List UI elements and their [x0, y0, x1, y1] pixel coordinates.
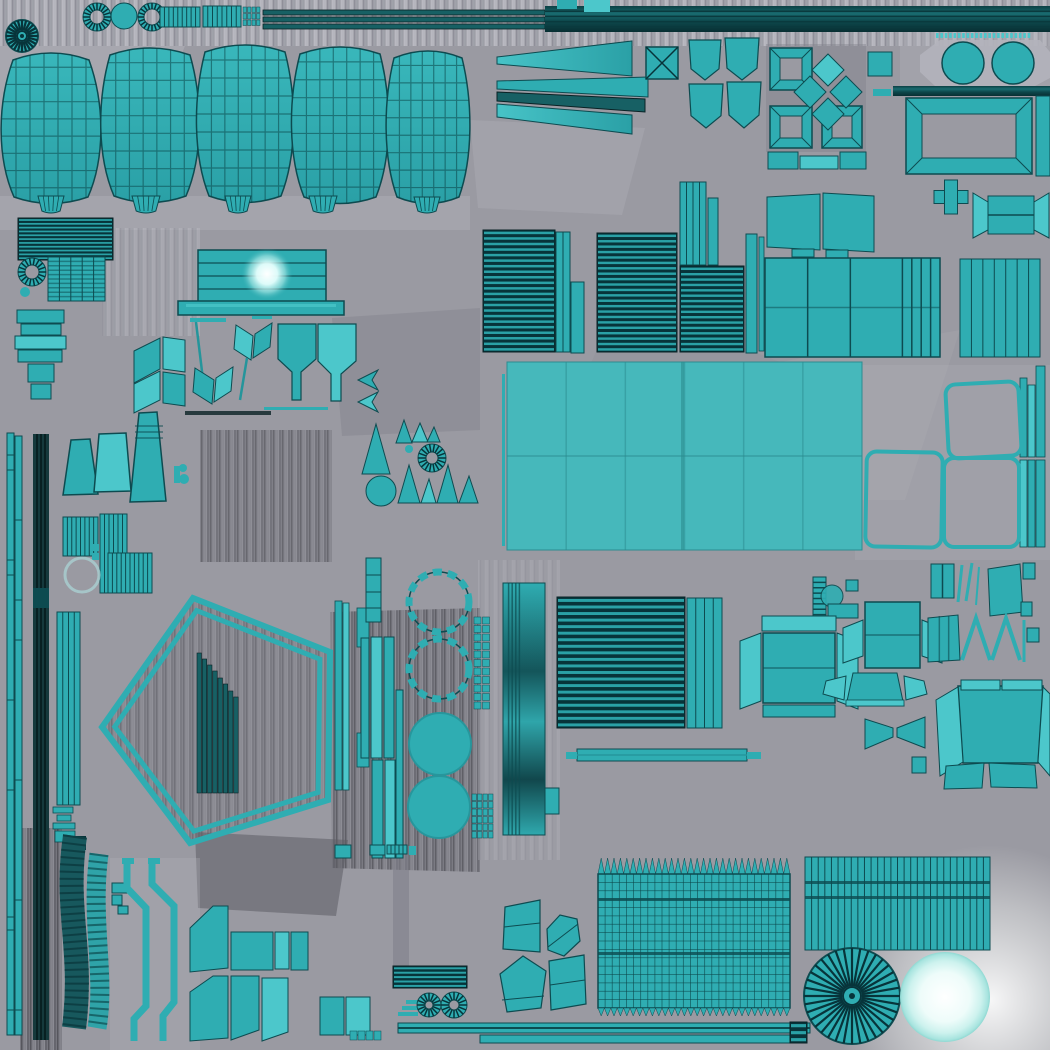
- cell-column: [483, 694, 490, 701]
- cell-grid: [489, 817, 494, 824]
- square-frame: [906, 98, 1032, 174]
- louver-panel: [484, 248, 554, 250]
- unfold-flap: [936, 687, 963, 776]
- striped-strip: [203, 6, 241, 27]
- slat-seam: [805, 896, 990, 899]
- dark-rail-cap: [33, 588, 49, 608]
- louver-panel: [558, 710, 684, 713]
- slat: [746, 234, 757, 353]
- rod-cap: [566, 752, 577, 759]
- dot: [179, 464, 187, 472]
- louver-panel: [681, 321, 743, 323]
- louver-panel: [558, 678, 684, 681]
- pod-panel: [0, 50, 105, 205]
- louver-panel: [598, 332, 676, 334]
- louver-panel: [598, 289, 676, 291]
- stair-strips: [213, 671, 217, 793]
- louver-panel: [791, 1038, 806, 1041]
- radial-fan-disc: [849, 993, 855, 999]
- long-strip: [7, 433, 14, 1035]
- edge-strip: [1036, 96, 1050, 176]
- dotted-strip: [984, 33, 987, 38]
- comb-block: [243, 14, 247, 20]
- radial-fan-disc: [804, 948, 900, 1044]
- pod-tip-fan: [309, 196, 337, 213]
- cell-column: [474, 702, 481, 709]
- louver-panel: [484, 337, 554, 339]
- unfold-flap: [944, 763, 984, 789]
- panel: [291, 932, 308, 970]
- louver-panel: [558, 658, 684, 661]
- dotted-strip: [1010, 33, 1013, 38]
- chip: [335, 845, 351, 858]
- comb-block: [257, 7, 261, 13]
- louver-panel: [19, 223, 112, 225]
- edge-slat: [1036, 460, 1045, 547]
- pod-panel: [97, 45, 203, 204]
- skirt-hem: [846, 700, 904, 706]
- louver-panel: [598, 337, 676, 339]
- x-square: [646, 47, 678, 79]
- louver-panel: [681, 311, 743, 313]
- cell-column: [483, 634, 490, 641]
- slat-panel: [57, 612, 80, 805]
- curved-ribbed-band: [96, 854, 100, 1028]
- dot: [405, 445, 413, 453]
- cell-column: [474, 660, 481, 667]
- slat-seam: [805, 881, 990, 884]
- uv-texture-atlas-page: [0, 0, 1050, 1050]
- louver-panel: [598, 327, 676, 329]
- chip: [1023, 563, 1035, 579]
- cell-grid: [478, 824, 483, 831]
- comb-block: [257, 14, 261, 20]
- cell-column: [483, 651, 490, 658]
- louver-panel: [558, 684, 684, 687]
- bg-patch: [195, 832, 348, 916]
- dotted-strip: [971, 33, 974, 38]
- louver-panel: [598, 310, 676, 312]
- louver-panel: [681, 337, 743, 339]
- louver-panel: [681, 327, 743, 329]
- long-strip: [7, 433, 14, 1035]
- chip: [1027, 628, 1039, 642]
- glow-sphere: [900, 952, 990, 1042]
- long-strip: [15, 436, 22, 1035]
- cell-column: [483, 660, 490, 667]
- tall-bar: [372, 760, 383, 858]
- louver-panel: [483, 230, 555, 352]
- cell-grid: [489, 794, 494, 801]
- cell-column: [474, 651, 481, 658]
- louver-panel: [791, 1024, 806, 1027]
- stair-bit: [57, 815, 71, 821]
- pedestal-step: [31, 384, 51, 399]
- louver-panel: [598, 343, 676, 345]
- comb-block: [248, 20, 252, 26]
- chip: [92, 544, 99, 551]
- louver-panel: [681, 294, 743, 296]
- louver-panel: [484, 270, 554, 272]
- louver-panel: [484, 315, 554, 317]
- bg-patch: [200, 430, 332, 562]
- louver-panel: [484, 265, 554, 267]
- solid-disc: [408, 776, 470, 838]
- tall-bar: [385, 760, 395, 858]
- cell-column: [483, 668, 490, 675]
- louver-panel: [681, 273, 743, 275]
- louver-panel: [598, 321, 676, 323]
- louver-panel: [19, 219, 112, 221]
- cell-grid: [478, 832, 483, 839]
- cell-column: [474, 668, 481, 675]
- louver-panel: [598, 305, 676, 307]
- small-bar: [873, 89, 891, 96]
- louver-panel: [598, 240, 676, 242]
- grid-seam: [598, 952, 790, 955]
- dotted-strip: [975, 33, 978, 38]
- pod-panel: [193, 42, 297, 204]
- cell-grid: [478, 802, 483, 809]
- gear-disc: [20, 34, 24, 38]
- tetris-bit: [112, 895, 122, 905]
- small-disc: [20, 287, 30, 297]
- louver-panel: [558, 612, 684, 615]
- dot: [179, 474, 189, 484]
- stair-bit: [53, 823, 75, 829]
- stair-strips: [229, 691, 233, 793]
- pod-tip-fan: [38, 196, 64, 213]
- louver-panel: [484, 232, 554, 234]
- louver-panel: [18, 218, 113, 260]
- unfold-center: [958, 686, 1043, 763]
- louver-panel: [598, 235, 676, 237]
- chip: [92, 553, 99, 560]
- cell-grid: [483, 802, 488, 809]
- unfold-flap: [740, 633, 761, 709]
- unfold-flap: [1002, 680, 1042, 690]
- tab: [792, 249, 814, 257]
- cell-row: [350, 1031, 357, 1040]
- slat-panel: [387, 845, 407, 854]
- louver-panel: [19, 227, 112, 229]
- louver-panel: [394, 967, 466, 969]
- comb-block: [248, 7, 252, 13]
- louver-panel: [558, 717, 684, 720]
- comb-block: [248, 14, 252, 20]
- louver-panel: [598, 267, 676, 269]
- top-band: [545, 6, 1050, 32]
- comb-block: [252, 7, 256, 13]
- stair-bit: [53, 807, 73, 813]
- louver-panel: [484, 293, 554, 295]
- thin-strip: [502, 374, 505, 546]
- louver-panel: [484, 237, 554, 239]
- dotted-strip: [1006, 33, 1009, 38]
- segmented-strip: [366, 558, 381, 622]
- panel: [320, 997, 344, 1035]
- louver-panel: [681, 300, 743, 302]
- louver-panel: [19, 242, 112, 244]
- arrow-flag: [190, 318, 226, 322]
- louver-panel: [680, 266, 744, 352]
- louver-panel: [681, 316, 743, 318]
- dotted-strip: [993, 33, 996, 38]
- tetris-bit: [118, 906, 128, 914]
- louver-panel: [681, 348, 743, 350]
- cell-row: [358, 1031, 365, 1040]
- solid-disc: [111, 3, 137, 29]
- pinwheel-tab: [768, 152, 798, 169]
- comb-block: [252, 20, 256, 26]
- cross-piece: [945, 180, 958, 214]
- louver-panel: [484, 309, 554, 311]
- pod-panel: [383, 48, 473, 205]
- striped-strip: [160, 7, 200, 27]
- pod-tip-fan: [225, 196, 251, 213]
- sail-quad: [163, 372, 185, 406]
- wedge-panel: [928, 615, 960, 662]
- long-bar: [480, 1035, 790, 1043]
- long-bar-line: [398, 1027, 810, 1029]
- dotted-strip: [967, 33, 970, 38]
- cell-column: [474, 643, 481, 650]
- small-square: [868, 52, 892, 76]
- pod-tip-fan: [414, 197, 440, 213]
- louver-panel: [598, 245, 676, 247]
- louver-panel: [598, 272, 676, 274]
- pod-tip-fan: [309, 196, 337, 213]
- cell-grid: [489, 809, 494, 816]
- louver-panel: [598, 294, 676, 296]
- louver-panel: [598, 251, 676, 253]
- cell-column: [474, 694, 481, 701]
- pod-tip-fan: [132, 196, 160, 213]
- tall-bar: [335, 601, 342, 790]
- louver-panel: [790, 1022, 807, 1043]
- louver-panel: [19, 238, 112, 240]
- cell-grid: [478, 794, 483, 801]
- louver-panel: [598, 278, 676, 280]
- louver-panel: [681, 284, 743, 286]
- slat: [759, 237, 764, 351]
- unfold-flap: [961, 680, 1000, 690]
- cell-row: [366, 1031, 373, 1040]
- louver-panel: [484, 254, 554, 256]
- dotted-strip: [940, 33, 943, 38]
- stair-strips: [223, 684, 227, 793]
- dotted-strip: [962, 33, 965, 38]
- small-square: [912, 757, 926, 773]
- solid-disc: [409, 713, 471, 775]
- dotted-strip: [988, 33, 991, 38]
- louver-panel: [557, 597, 685, 728]
- square-frame: [922, 114, 1016, 158]
- slat-panel: [556, 232, 570, 352]
- hat-brim-highlight: [186, 304, 336, 307]
- long-strip: [15, 436, 22, 1035]
- slat-panel: [805, 857, 990, 950]
- cell-column: [483, 685, 490, 692]
- stair-strips: [202, 659, 206, 793]
- louver-panel: [558, 664, 684, 667]
- panel: [231, 976, 259, 1040]
- pod-tip-fan: [38, 196, 64, 213]
- grid-panel: [598, 874, 790, 1008]
- stair-strips: [208, 665, 212, 793]
- tab: [826, 250, 848, 258]
- dotted-strip: [1028, 33, 1031, 38]
- louver-panel: [558, 691, 684, 694]
- unfold-flap: [763, 705, 835, 717]
- louver-panel: [484, 326, 554, 328]
- bg-patch: [470, 120, 645, 215]
- louver-panel: [558, 671, 684, 674]
- pod-tip-fan: [132, 196, 160, 213]
- louver-panel: [19, 231, 112, 233]
- pedestal-step: [18, 350, 62, 362]
- dark-rule: [185, 411, 271, 415]
- cell-grid: [472, 802, 477, 809]
- dotted-strip: [1019, 33, 1022, 38]
- tall-bar: [396, 690, 403, 858]
- louver-panel: [681, 289, 743, 291]
- stair-strips: [234, 697, 238, 793]
- dotted-strip: [997, 33, 1000, 38]
- dotted-strip: [958, 33, 961, 38]
- panel: [275, 932, 289, 969]
- louver-panel: [393, 966, 467, 988]
- dotted-strip: [980, 33, 983, 38]
- louver-panel: [558, 704, 684, 707]
- slat-panel: [108, 553, 152, 593]
- cell-grid: [483, 794, 488, 801]
- table-edge: [893, 86, 1050, 96]
- pod-tip-fan: [414, 197, 440, 213]
- rail: [263, 24, 545, 29]
- cell-grid: [483, 832, 488, 839]
- segmented-strip: [366, 558, 381, 622]
- louver-panel: [19, 250, 112, 252]
- louver-panel: [484, 243, 554, 245]
- pedestal-step: [21, 324, 61, 335]
- chip: [370, 845, 385, 855]
- pod-tip-fan: [225, 196, 251, 213]
- bg-patch: [393, 846, 409, 966]
- trapezoid-panel: [767, 194, 820, 250]
- slat: [708, 198, 718, 265]
- louver-panel: [681, 332, 743, 334]
- cell-grid: [489, 824, 494, 831]
- louver-panel: [558, 619, 684, 622]
- hat-glow: [241, 248, 293, 300]
- slat-panel: [960, 259, 1040, 357]
- louver-panel: [558, 723, 684, 726]
- dotted-strip: [936, 33, 939, 38]
- trapezoid-panel: [823, 193, 874, 252]
- louver-panel: [598, 283, 676, 285]
- cell-column: [474, 617, 481, 624]
- step-bit: [398, 1012, 418, 1016]
- louver-panel: [484, 282, 554, 284]
- cell-column: [483, 617, 490, 624]
- rail: [263, 10, 545, 15]
- louver-panel: [484, 259, 554, 261]
- panel: [262, 978, 288, 1041]
- tall-bar: [361, 638, 369, 758]
- dotted-strip: [953, 33, 956, 38]
- stair-strips: [218, 678, 222, 793]
- louver-panel: [484, 287, 554, 289]
- tab: [545, 788, 559, 814]
- louver-panel: [558, 645, 684, 648]
- plate-disc: [992, 42, 1034, 84]
- dotted-strip: [945, 33, 948, 38]
- louver-panel: [598, 262, 676, 264]
- louver-panel: [558, 599, 684, 602]
- tall-bar: [371, 637, 382, 758]
- cell-row: [374, 1031, 381, 1040]
- louver-panel: [484, 320, 554, 322]
- cell-grid: [472, 809, 477, 816]
- dotted-strip: [1015, 33, 1018, 38]
- wedge-panel: [988, 564, 1023, 616]
- cell-column: [474, 634, 481, 641]
- slat: [571, 282, 584, 353]
- cell-column: [474, 677, 481, 684]
- sail-quad: [163, 337, 185, 372]
- louver-panel: [558, 625, 684, 628]
- chip: [1021, 602, 1032, 616]
- louver-panel: [484, 298, 554, 300]
- curved-ribbed-band: [72, 836, 77, 1028]
- louver-panel: [558, 697, 684, 700]
- louver-panel: [681, 278, 743, 280]
- tall-bar: [384, 637, 394, 758]
- comb-block: [243, 20, 247, 26]
- edge-slat: [1020, 460, 1027, 547]
- comb-block: [257, 20, 261, 26]
- louver-panel: [19, 254, 112, 256]
- tall-bar: [343, 603, 349, 790]
- cell-grid: [478, 809, 483, 816]
- cell-grid: [489, 802, 494, 809]
- louver-panel: [394, 985, 466, 987]
- cell-column: [483, 643, 490, 650]
- cell-column: [483, 626, 490, 633]
- arrow-flag: [252, 316, 272, 319]
- rail: [263, 17, 545, 22]
- louver-panel: [558, 632, 684, 635]
- striped-strip: [160, 7, 200, 27]
- louver-panel: [484, 331, 554, 333]
- louver-panel: [598, 256, 676, 258]
- louver-panel: [558, 638, 684, 641]
- edge-slat: [1028, 385, 1035, 457]
- cell-grid: [472, 824, 477, 831]
- comb-block: [252, 14, 256, 20]
- louver-panel: [484, 348, 554, 350]
- stair-strips: [197, 653, 201, 793]
- pod-panel: [288, 44, 392, 205]
- louver-panel: [557, 597, 685, 728]
- trapezoid: [94, 433, 131, 492]
- cell-column: [483, 677, 490, 684]
- dotted-strip: [949, 33, 952, 38]
- louver-panel: [19, 246, 112, 248]
- square-ring: [780, 116, 802, 138]
- louver-panel: [681, 305, 743, 307]
